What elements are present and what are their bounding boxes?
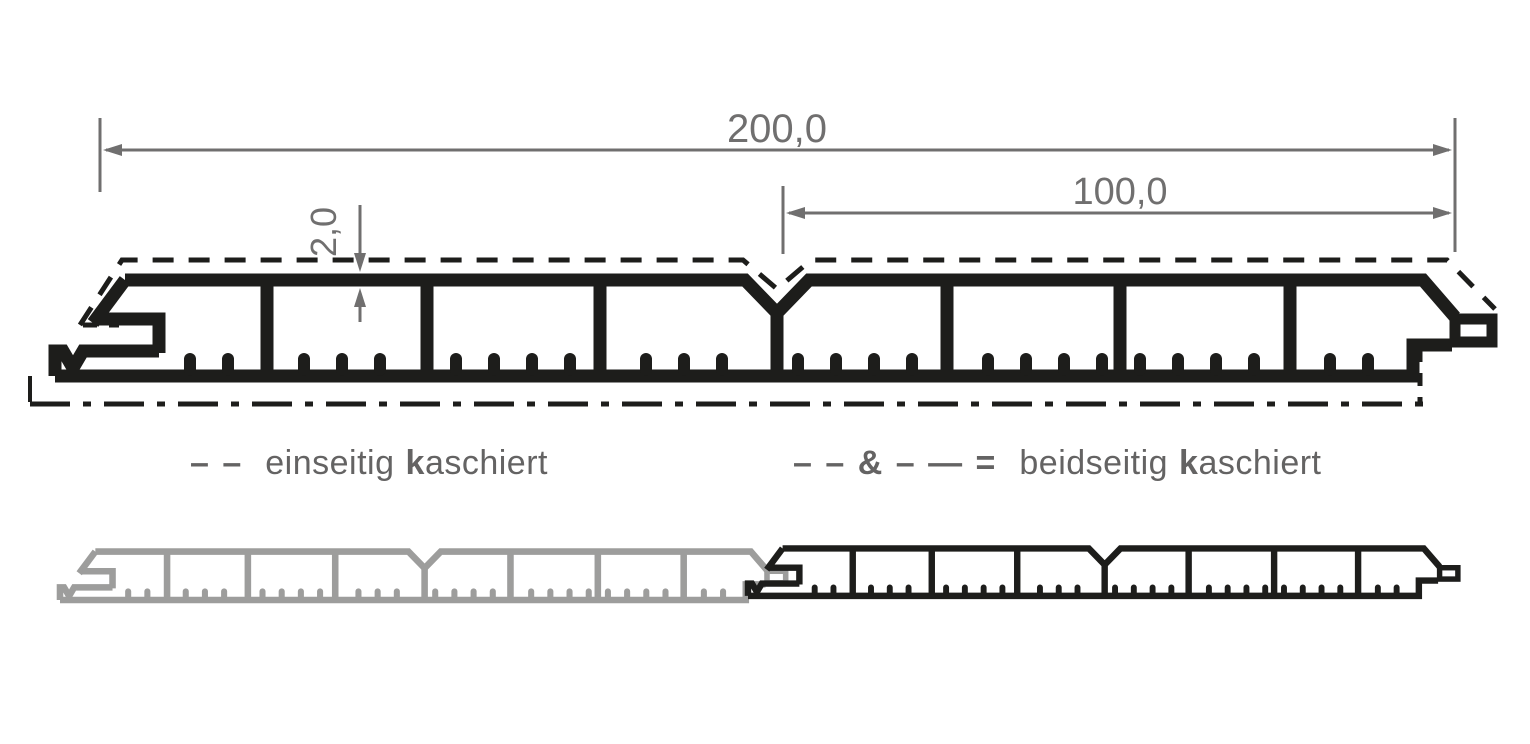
arrowhead-left <box>103 144 122 156</box>
panel-profile-diagram: 200,0 100,0 2,0 <box>0 0 1530 744</box>
main-profile <box>55 280 1492 376</box>
legend-two-sided: – – & – — =beidseitigkaschiert <box>793 444 1322 483</box>
arrowhead-left <box>786 207 805 219</box>
arrowhead-down <box>354 253 366 272</box>
technical-drawing-page: 200,0 100,0 2,0 – –einseitigkaschiert – … <box>0 0 1530 744</box>
arrowhead-up <box>354 288 366 307</box>
arrowhead-right <box>1433 207 1452 219</box>
lamination-dashed-top <box>80 260 1495 325</box>
legend-word: beidseitig <box>1019 444 1168 482</box>
dimension-labels: 200,0 100,0 2,0 <box>303 107 1168 257</box>
dashed-line-symbol: – – <box>190 444 243 482</box>
legend-word: kaschiert <box>406 444 548 482</box>
dimension-label-half: 100,0 <box>1072 171 1167 213</box>
legend-one-sided: – –einseitigkaschiert <box>190 444 548 483</box>
arrowhead-right <box>1433 144 1452 156</box>
dimension-label-total: 200,0 <box>727 107 827 151</box>
dash-and-chain-symbol: – – & – — = <box>793 444 997 482</box>
dimension-label-thickness: 2,0 <box>303 207 344 257</box>
bottom-profile-right-black <box>748 548 1458 595</box>
bottom-profile-left-gray <box>60 552 786 600</box>
legend-word: kaschiert <box>1179 444 1321 482</box>
legend-word: einseitig <box>265 444 394 482</box>
